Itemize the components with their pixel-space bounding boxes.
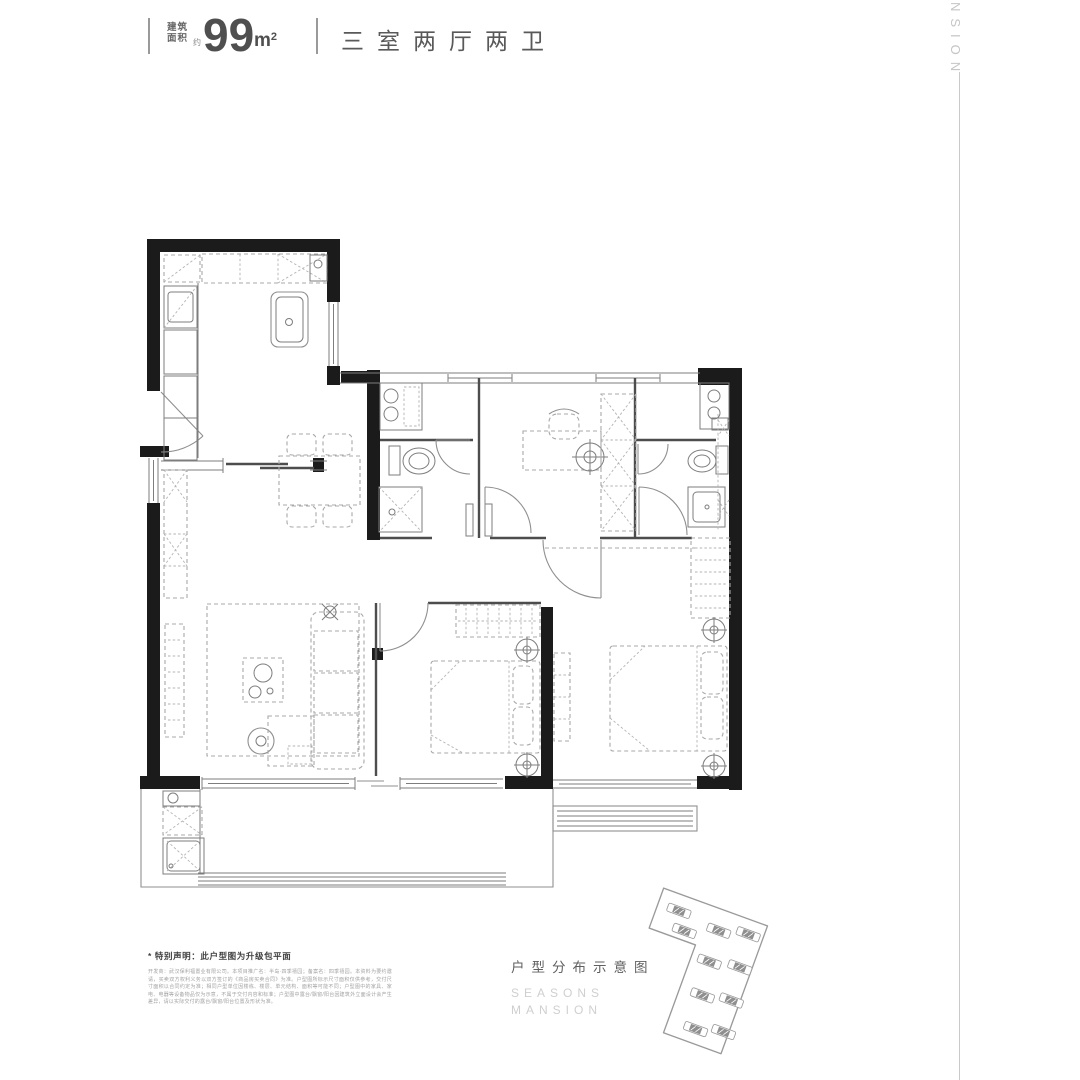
living-room	[165, 604, 364, 769]
entry-foyer	[164, 470, 187, 598]
bedroom-middle	[431, 605, 540, 778]
special-note: * 特别声明：此户型图为升级包平面	[148, 950, 291, 962]
header-divider-right	[316, 18, 318, 54]
bathroom-2	[688, 383, 729, 530]
interior-walls	[161, 378, 716, 776]
floorplan-page: { "header": { "area_label_line1": "建筑", …	[0, 0, 1080, 1080]
brand-mansion: MANSION	[511, 1003, 602, 1017]
pocket-door-post	[466, 504, 473, 536]
doors	[161, 392, 687, 651]
balcony	[141, 789, 553, 887]
approx-label: 约	[193, 37, 201, 48]
area-value: 99	[203, 8, 254, 62]
area-unit-base: m	[254, 30, 271, 51]
master-bedroom-door	[543, 540, 601, 598]
windows	[149, 302, 700, 790]
vertical-brand-text: NSION	[948, 2, 963, 78]
floor-plan-drawing	[135, 230, 765, 900]
area-label: 建筑 面积	[167, 22, 188, 44]
walls	[140, 239, 742, 790]
dining-area	[279, 434, 360, 527]
legal-disclaimer: 开发商：武汉保利福置业有限公司。本项目推广名：半岛·四季禧园；备案名：四季禧园。…	[148, 969, 392, 1007]
pocket-door-post	[485, 504, 492, 536]
layout-title: 三室两厅两卫	[341, 22, 557, 56]
middle-bedroom-door	[380, 603, 428, 651]
bathroom2-inner-door	[638, 444, 668, 474]
area-label-line1: 建筑	[167, 22, 188, 33]
kitchen	[164, 254, 327, 460]
bathroom-1	[379, 383, 435, 532]
floor-plan	[135, 230, 765, 900]
area-label-line2: 面积	[167, 33, 188, 44]
header: 建筑 面积 约 99 m2 三室两厅两卫	[0, 0, 1080, 80]
brand-seasons: SEASONS	[511, 986, 604, 1000]
area-unit: m2	[254, 30, 277, 52]
ac-platform	[553, 806, 697, 831]
bedroom-master	[554, 538, 730, 779]
bathroom1-door	[436, 440, 470, 474]
site-plan-drawing	[600, 885, 810, 1065]
bathroom2-door	[639, 487, 687, 535]
header-divider-left	[148, 18, 150, 54]
site-plan	[600, 885, 810, 1070]
study-room	[523, 394, 636, 531]
area-unit-sup: 2	[271, 31, 277, 43]
vertical-rule	[959, 72, 960, 1080]
